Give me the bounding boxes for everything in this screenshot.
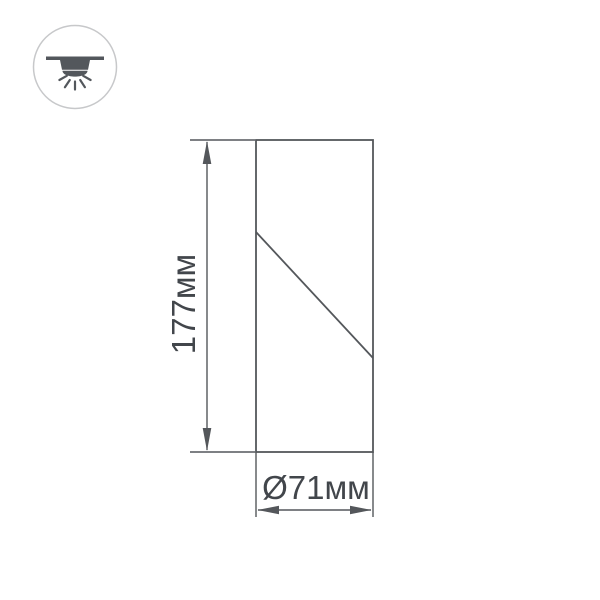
height-arrow-down	[203, 428, 212, 451]
fixture-seam-line	[256, 232, 373, 358]
height-arrow-up	[203, 141, 212, 164]
mounting-type-badge	[34, 26, 117, 109]
fixture-body	[60, 60, 90, 70]
diameter-arrow-left	[258, 506, 280, 515]
diameter-arrow-right	[350, 506, 372, 515]
ceiling-line	[46, 57, 104, 61]
diameter-label: Ø71мм	[262, 469, 370, 506]
technical-drawing-canvas: 177мм Ø71мм	[0, 0, 600, 600]
diameter-dimension: Ø71мм	[256, 452, 373, 517]
height-dimension: 177мм	[165, 140, 255, 452]
technical-drawing-page: 177мм Ø71мм	[0, 0, 600, 600]
height-label: 177мм	[165, 254, 202, 354]
fixture-side-view	[256, 140, 373, 452]
